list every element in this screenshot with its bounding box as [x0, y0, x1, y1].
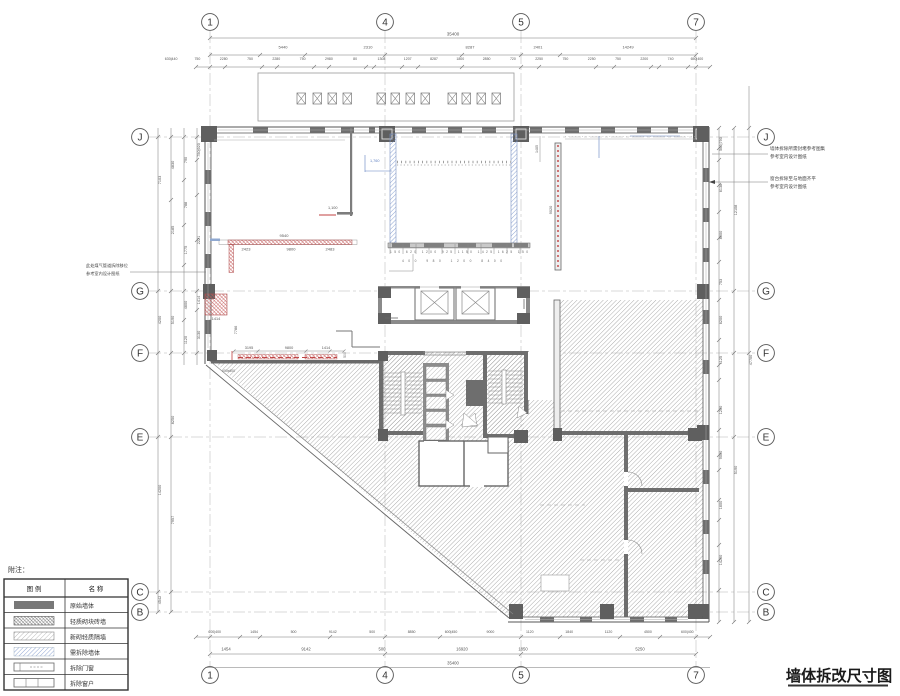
svg-text:16920: 16920	[456, 647, 468, 652]
svg-text:500: 500	[369, 630, 375, 634]
svg-text:B: B	[763, 608, 770, 619]
svg-text:3195: 3195	[245, 346, 253, 350]
svg-text:2221: 2221	[197, 236, 201, 244]
svg-text:需拆除墙体: 需拆除墙体	[70, 649, 100, 657]
svg-text:1200: 1200	[719, 406, 723, 414]
svg-text:9142: 9142	[301, 647, 311, 652]
svg-text:9000: 9000	[719, 451, 723, 459]
svg-text:2401: 2401	[534, 45, 544, 50]
svg-text:参考室内设计图纸: 参考室内设计图纸	[86, 270, 120, 277]
svg-text:9800: 9800	[287, 247, 297, 252]
svg-text:47700: 47700	[749, 355, 753, 366]
svg-text:墙体拆改尺寸图: 墙体拆改尺寸图	[786, 667, 892, 685]
svg-text:35400: 35400	[447, 661, 459, 666]
svg-text:2850: 2850	[483, 57, 491, 61]
svg-text:E: E	[137, 433, 144, 444]
svg-text:1454: 1454	[221, 647, 231, 652]
svg-text:1,100: 1,100	[328, 206, 338, 210]
svg-text:附注：: 附注：	[8, 565, 29, 574]
svg-text:14200: 14200	[719, 555, 723, 566]
svg-text:4600: 4600	[184, 301, 188, 309]
svg-text:4: 4	[382, 18, 388, 29]
svg-text:7103: 7103	[158, 176, 162, 184]
svg-text:750: 750	[615, 57, 621, 61]
svg-text:2980: 2980	[325, 57, 333, 61]
svg-text:2250: 2250	[535, 57, 543, 61]
svg-text:9020: 9020	[549, 206, 553, 214]
svg-text:6200: 6200	[719, 316, 723, 324]
svg-text:150 620 1200 925 1150 1425 162: 150 620 1200 925 1150 1425 1625 150	[390, 250, 528, 254]
svg-text:650|400: 650|400	[691, 57, 704, 61]
svg-text:1454: 1454	[250, 630, 258, 634]
svg-text:500: 500	[343, 352, 347, 358]
svg-text:600|400: 600|400	[208, 630, 221, 634]
svg-text:8000: 8000	[719, 231, 723, 239]
svg-text:此处煤气管道拆除移位: 此处煤气管道拆除移位	[86, 262, 128, 269]
svg-text:500: 500	[291, 630, 297, 634]
svg-text:2250: 2250	[588, 57, 596, 61]
svg-text:1207: 1207	[404, 57, 412, 61]
svg-text:600|450: 600|450	[445, 630, 458, 634]
svg-text:8287: 8287	[430, 57, 438, 61]
svg-text:562|790: 562|790	[719, 137, 723, 151]
svg-text:1120: 1120	[526, 630, 534, 634]
svg-text:2185: 2185	[171, 226, 175, 234]
svg-text:750: 750	[247, 57, 253, 61]
svg-text:1485: 1485	[535, 145, 539, 153]
svg-text:2280: 2280	[220, 57, 228, 61]
svg-text:J: J	[138, 133, 143, 144]
svg-text:630|440: 630|440	[165, 57, 178, 61]
svg-text:6138: 6138	[719, 184, 723, 192]
svg-text:4830: 4830	[171, 161, 175, 169]
svg-text:拆除窗户: 拆除窗户	[70, 680, 94, 688]
svg-text:500: 500	[379, 647, 387, 652]
svg-text:750|920: 750|920	[197, 143, 201, 157]
svg-text:14249: 14249	[622, 45, 634, 50]
svg-text:753: 753	[719, 279, 723, 285]
svg-text:2423: 2423	[242, 247, 252, 252]
svg-text:8287: 8287	[466, 45, 476, 50]
svg-text:4500: 4500	[644, 630, 652, 634]
svg-text:9540: 9540	[280, 233, 290, 238]
svg-text:1414: 1414	[197, 296, 201, 304]
svg-text:1775: 1775	[184, 246, 188, 254]
svg-text:2310: 2310	[364, 45, 374, 50]
svg-text:4542: 4542	[158, 596, 162, 604]
svg-text:9142: 9142	[329, 630, 337, 634]
svg-text:2200: 2200	[640, 57, 648, 61]
svg-text:7: 7	[693, 671, 699, 682]
svg-text:740: 740	[668, 57, 674, 61]
svg-text:750: 750	[300, 57, 306, 61]
svg-text:600|400: 600|400	[681, 630, 694, 634]
svg-text:1414: 1414	[322, 346, 330, 350]
svg-text:750: 750	[562, 57, 568, 61]
svg-text:8250: 8250	[171, 416, 175, 424]
svg-text:35400: 35400	[447, 32, 460, 37]
svg-text:1850: 1850	[518, 647, 528, 652]
svg-text:1: 1	[207, 671, 213, 682]
svg-text:5250: 5250	[635, 647, 645, 652]
svg-text:3130: 3130	[197, 331, 201, 339]
svg-text:5440: 5440	[279, 45, 289, 50]
svg-text:1840: 1840	[565, 630, 573, 634]
svg-text:788: 788	[184, 202, 188, 208]
svg-text:新砌轻质隔墙: 新砌轻质隔墙	[70, 634, 106, 642]
svg-text:原始墙体: 原始墙体	[70, 602, 94, 610]
svg-text:12108: 12108	[734, 205, 738, 216]
svg-text:1414: 1414	[212, 317, 220, 321]
svg-text:1800: 1800	[456, 57, 464, 61]
svg-text:7957: 7957	[171, 516, 175, 524]
svg-text:5: 5	[518, 671, 524, 682]
svg-text:790: 790	[184, 157, 188, 163]
svg-text:8850: 8850	[408, 630, 416, 634]
svg-text:2483: 2483	[326, 247, 336, 252]
svg-text:4200: 4200	[158, 316, 162, 324]
svg-text:5190: 5190	[734, 466, 738, 474]
svg-text:1120: 1120	[605, 630, 613, 634]
svg-text:1,760: 1,760	[370, 159, 380, 163]
svg-text:7786: 7786	[234, 326, 238, 334]
svg-text:7: 7	[693, 18, 699, 29]
svg-text:1600: 1600	[719, 501, 723, 509]
svg-text:720: 720	[510, 57, 516, 61]
svg-text:F: F	[137, 349, 143, 360]
svg-text:F: F	[763, 349, 769, 360]
svg-text:5: 5	[518, 18, 524, 29]
svg-text:1125: 1125	[719, 356, 723, 364]
svg-text:参考室内设计图纸: 参考室内设计图纸	[770, 153, 807, 160]
svg-text:C: C	[136, 588, 143, 599]
svg-text:拆除门窗: 拆除门窗	[70, 665, 94, 673]
svg-text:1120: 1120	[184, 336, 188, 344]
svg-text:9800: 9800	[285, 346, 293, 350]
svg-text:E: E	[763, 433, 770, 444]
svg-text:墙体拆除所需封堵参考图集: 墙体拆除所需封堵参考图集	[770, 145, 826, 152]
svg-text:轻质砌块砖墙: 轻质砌块砖墙	[70, 618, 106, 626]
svg-text:1: 1	[207, 18, 213, 29]
svg-text:600x600: 600x600	[222, 369, 235, 373]
svg-text:1308: 1308	[378, 57, 386, 61]
svg-text:9000: 9000	[487, 630, 495, 634]
svg-text:C: C	[762, 588, 769, 599]
svg-text:图 例: 图 例	[27, 584, 42, 593]
svg-text:名 称: 名 称	[89, 584, 104, 593]
svg-text:2280: 2280	[272, 57, 280, 61]
svg-text:80: 80	[353, 57, 357, 61]
svg-text:B: B	[137, 608, 144, 619]
svg-text:G: G	[136, 287, 144, 298]
svg-text:5190: 5190	[171, 316, 175, 324]
svg-text:14200: 14200	[158, 485, 162, 496]
svg-text:G: G	[762, 287, 770, 298]
svg-text:窗台拆除至与地面齐平: 窗台拆除至与地面齐平	[770, 175, 816, 182]
svg-text:750: 750	[194, 57, 200, 61]
svg-text:J: J	[764, 133, 769, 144]
svg-text:4: 4	[382, 671, 388, 682]
svg-text:参考室内设计图纸: 参考室内设计图纸	[770, 183, 807, 190]
